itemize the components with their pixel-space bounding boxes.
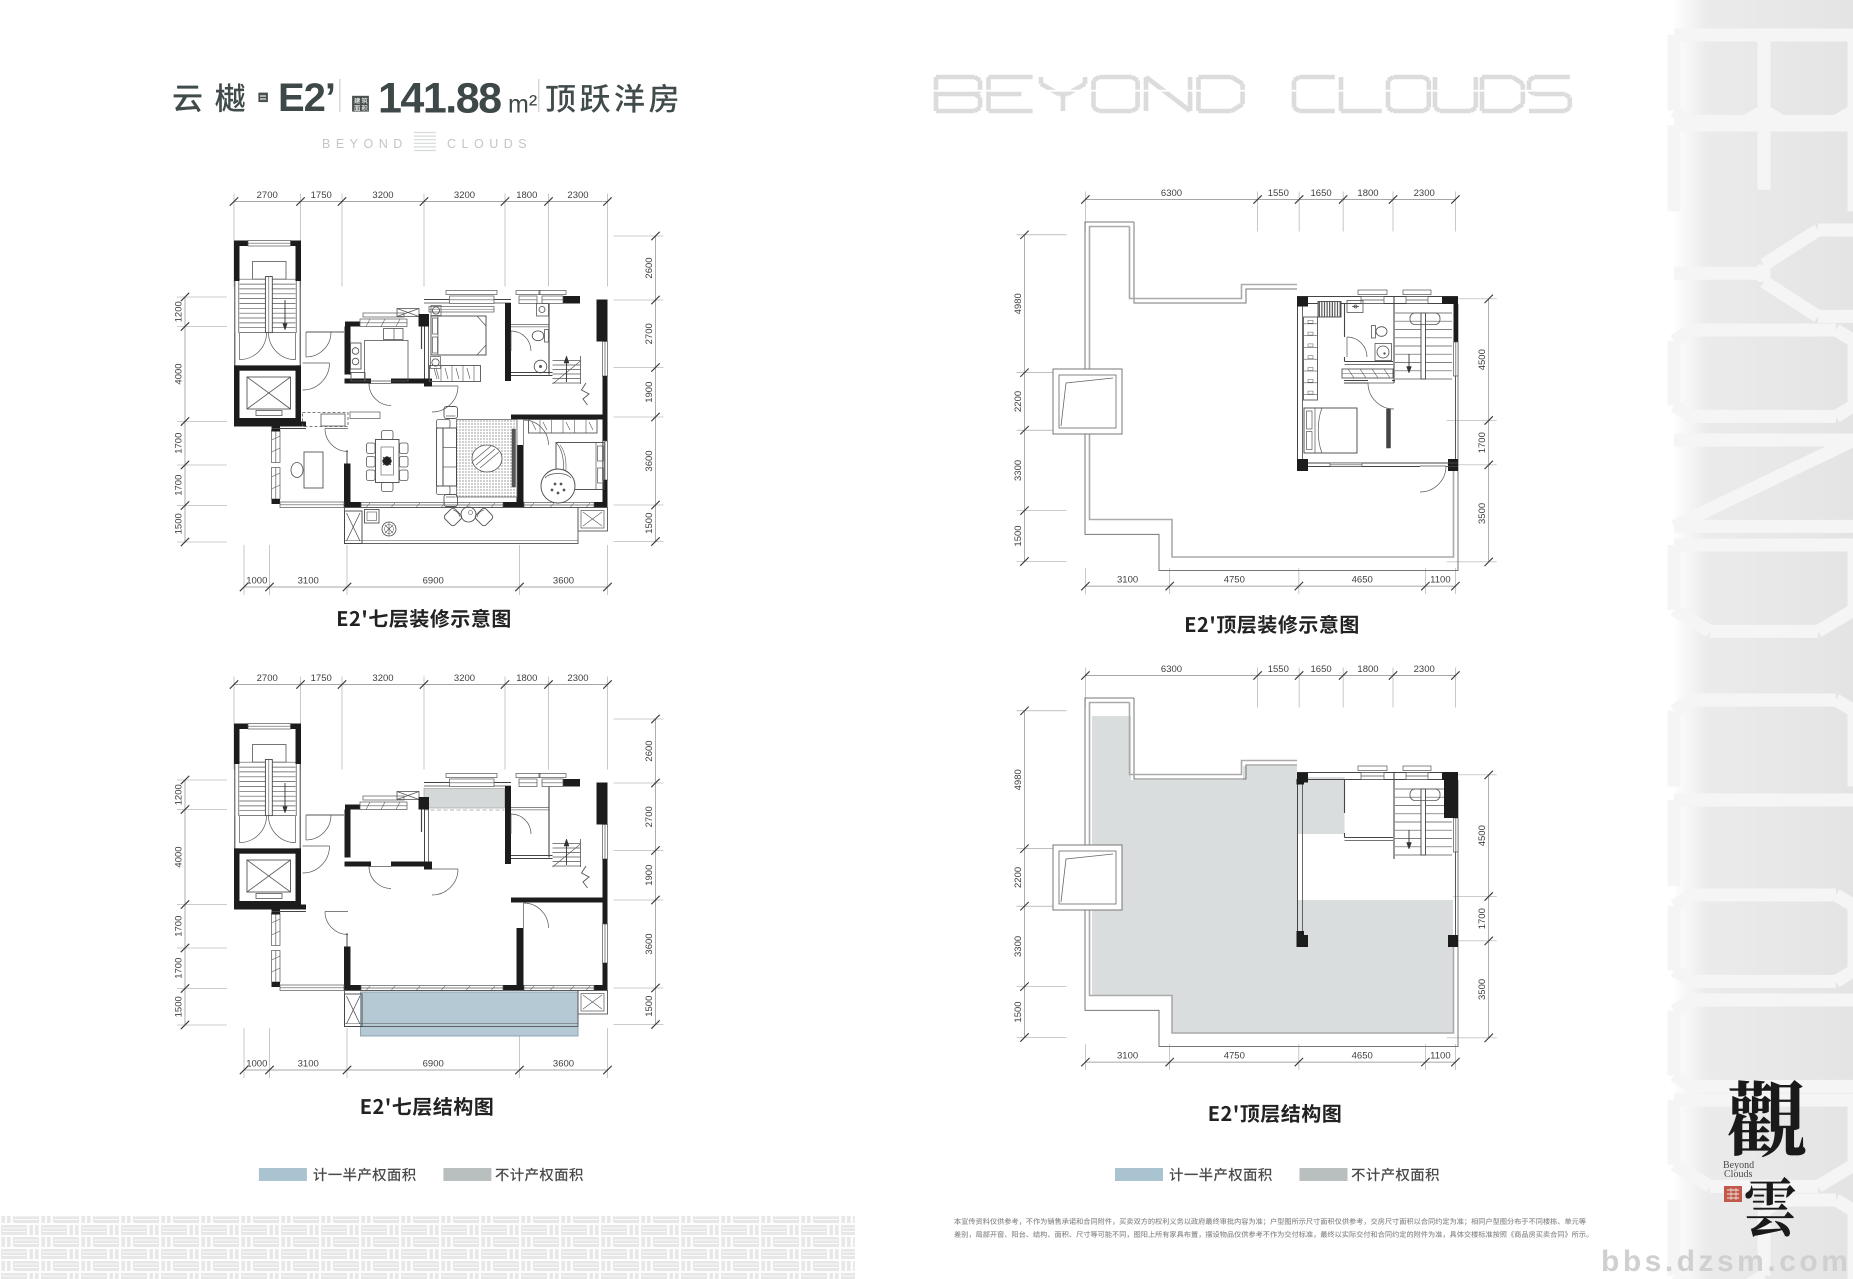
- svg-text:3600: 3600: [553, 576, 574, 587]
- svg-text:1000: 1000: [246, 576, 267, 587]
- svg-text:m²: m²: [508, 91, 537, 119]
- svg-text:1700: 1700: [174, 433, 185, 454]
- svg-text:1800: 1800: [1357, 188, 1378, 199]
- svg-text:4500: 4500: [1477, 349, 1488, 370]
- svg-text:1200: 1200: [174, 301, 185, 322]
- svg-text:4000: 4000: [174, 363, 185, 384]
- svg-text:2200: 2200: [1013, 391, 1024, 412]
- svg-text:1700: 1700: [1477, 432, 1488, 453]
- svg-text:6300: 6300: [1161, 188, 1182, 199]
- svg-text:4650: 4650: [1352, 575, 1373, 586]
- svg-text:2300: 2300: [1414, 188, 1435, 199]
- svg-text:1500: 1500: [174, 513, 185, 534]
- svg-text:1900: 1900: [644, 382, 655, 403]
- svg-text:3200: 3200: [372, 190, 393, 201]
- svg-text:3100: 3100: [298, 576, 319, 587]
- svg-text:1650: 1650: [1311, 188, 1332, 199]
- svg-text:2300: 2300: [567, 190, 588, 201]
- svg-text:1800: 1800: [516, 190, 537, 201]
- svg-text:Clouds: Clouds: [1724, 1169, 1752, 1180]
- svg-text:1700: 1700: [174, 475, 185, 496]
- svg-text:2700: 2700: [644, 323, 655, 344]
- svg-text:1500: 1500: [644, 513, 655, 534]
- svg-text:1750: 1750: [311, 190, 332, 201]
- svg-text:3300: 3300: [1013, 460, 1024, 481]
- svg-text:3100: 3100: [1117, 575, 1138, 586]
- svg-text:3200: 3200: [454, 190, 475, 201]
- svg-text:2600: 2600: [644, 257, 655, 278]
- svg-text:1100: 1100: [1430, 575, 1450, 586]
- svg-text:CLOUDS: CLOUDS: [447, 137, 532, 151]
- svg-text:1550: 1550: [1268, 188, 1289, 199]
- svg-text:4980: 4980: [1013, 293, 1024, 314]
- svg-text:1500: 1500: [1013, 525, 1024, 546]
- svg-text:bbs.dzsm.com: bbs.dzsm.com: [1601, 1245, 1851, 1278]
- svg-text:3500: 3500: [1477, 503, 1488, 524]
- svg-text:4750: 4750: [1224, 575, 1245, 586]
- svg-text:BEYOND: BEYOND: [322, 137, 408, 151]
- svg-text:141.88: 141.88: [378, 75, 501, 123]
- svg-text:6900: 6900: [423, 576, 444, 587]
- svg-text:2700: 2700: [257, 190, 278, 201]
- svg-text:E2’: E2’: [278, 76, 335, 120]
- svg-text:3600: 3600: [644, 450, 655, 471]
